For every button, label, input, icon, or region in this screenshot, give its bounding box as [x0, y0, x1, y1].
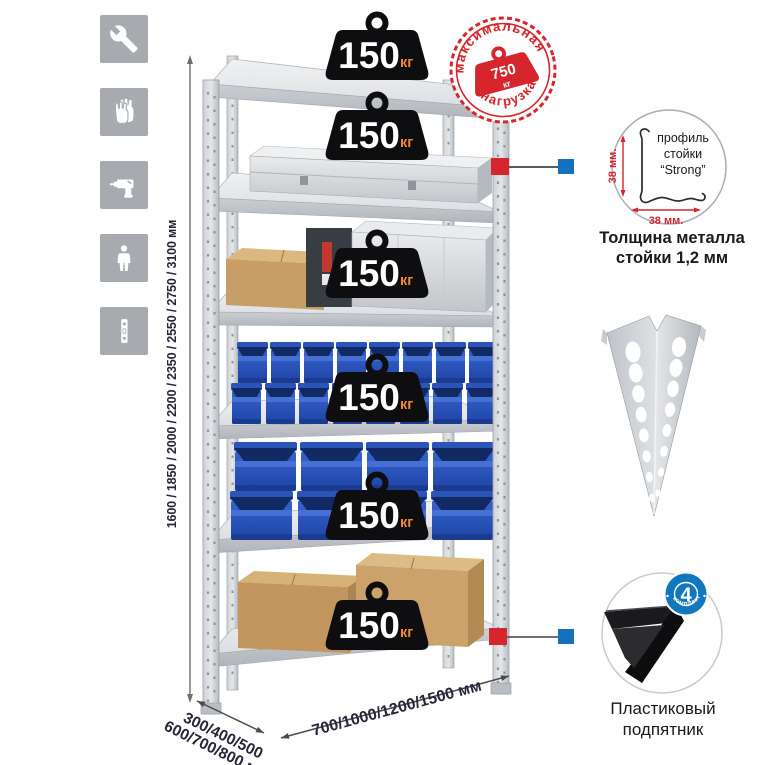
load-unit: кг — [400, 135, 413, 151]
front-right-post — [491, 104, 511, 694]
height-dimension: 1600 / 1850 / 2000 / 2200 / 2350 / 2550 … — [165, 55, 193, 703]
thickness-caption-line2: стойки 1,2 мм — [582, 248, 762, 268]
profile-label-2: стойки — [664, 147, 702, 161]
load-value: 150 — [338, 115, 400, 156]
callout-top — [491, 158, 574, 175]
load-value: 150 — [338, 495, 400, 536]
profile-label-3: “Strong” — [660, 163, 705, 177]
height-values-label: 1600 / 1850 / 2000 / 2200 / 2350 / 2550 … — [165, 220, 179, 529]
load-value: 150 — [338, 377, 400, 418]
thickness-caption: Толщина металла стойки 1,2 мм — [582, 228, 762, 268]
shelf-load-badge-1: 150 кг — [326, 15, 429, 81]
load-unit: кг — [400, 273, 413, 289]
profile-detail-circle: 38 мм. 38 мм. профиль стойки “Strong” — [607, 110, 726, 227]
load-value: 150 — [338, 35, 400, 76]
product-infographic: 1600 / 1850 / 2000 / 2200 / 2350 / 2550 … — [0, 0, 765, 765]
angle-post-image — [601, 315, 706, 516]
callout-bottom — [489, 628, 574, 645]
load-unit: кг — [400, 55, 413, 71]
load-unit: кг — [400, 397, 413, 413]
width-label: 700/1000/1200/1500 мм — [310, 678, 483, 740]
profile-label-1: профиль — [657, 131, 709, 145]
rack-illustration-canvas: 1600 / 1850 / 2000 / 2200 / 2350 / 2550 … — [0, 0, 765, 765]
thickness-caption-line1: Толщина металла — [582, 228, 762, 248]
foot-caption-line2: подпятник — [573, 720, 753, 741]
foot-caption: Пластиковый подпятник — [573, 699, 753, 740]
large-bins-upper-row — [234, 442, 495, 491]
load-value: 150 — [338, 605, 400, 646]
load-value: 150 — [338, 253, 400, 294]
width-dimension: 700/1000/1200/1500 мм — [281, 675, 509, 740]
front-left-post — [201, 80, 221, 714]
load-unit: кг — [400, 625, 413, 641]
profile-dim-horizontal: 38 мм. — [649, 215, 684, 227]
foot-caption-line1: Пластиковый — [573, 699, 753, 720]
load-unit: кг — [400, 515, 413, 531]
profile-dim-vertical: 38 мм. — [607, 149, 619, 184]
